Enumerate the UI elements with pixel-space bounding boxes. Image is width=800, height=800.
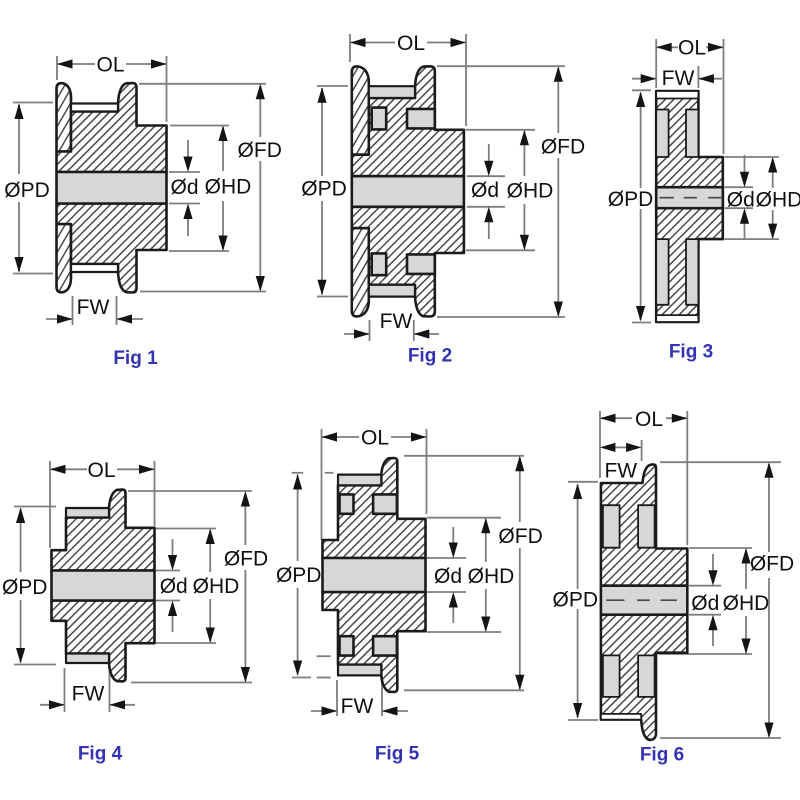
svg-text:FW: FW bbox=[604, 460, 637, 483]
svg-text:OL: OL bbox=[361, 427, 389, 450]
svg-text:FW: FW bbox=[341, 695, 374, 718]
svg-text:ØHD: ØHD bbox=[507, 180, 554, 203]
svg-text:ØFD: ØFD bbox=[238, 139, 282, 162]
svg-text:Fig 1: Fig 1 bbox=[113, 348, 158, 369]
svg-text:OL: OL bbox=[635, 408, 663, 431]
svg-text:Ød: Ød bbox=[691, 592, 719, 615]
svg-text:OL: OL bbox=[397, 32, 425, 55]
svg-text:FW: FW bbox=[72, 683, 105, 706]
svg-text:ØFD: ØFD bbox=[541, 136, 585, 159]
svg-text:ØHD: ØHD bbox=[468, 565, 515, 588]
svg-text:ØFD: ØFD bbox=[498, 525, 542, 548]
svg-text:FW: FW bbox=[662, 67, 695, 90]
svg-text:ØHD: ØHD bbox=[723, 592, 770, 615]
svg-text:ØHD: ØHD bbox=[193, 575, 240, 598]
svg-text:OL: OL bbox=[678, 37, 706, 60]
svg-text:Fig 6: Fig 6 bbox=[640, 745, 684, 766]
svg-text:ØPD: ØPD bbox=[301, 178, 347, 201]
svg-text:Ød: Ød bbox=[160, 575, 188, 598]
svg-text:Ød: Ød bbox=[471, 179, 499, 202]
svg-text:ØHD: ØHD bbox=[205, 176, 252, 199]
svg-text:Ød: Ød bbox=[434, 565, 462, 588]
svg-text:ØFD: ØFD bbox=[224, 548, 268, 571]
svg-text:Fig 3: Fig 3 bbox=[669, 342, 713, 363]
svg-text:Fig 2: Fig 2 bbox=[408, 346, 452, 367]
svg-text:ØPD: ØPD bbox=[2, 576, 48, 599]
svg-text:ØPD: ØPD bbox=[276, 564, 322, 587]
svg-text:Ød: Ød bbox=[727, 189, 755, 212]
svg-text:OL: OL bbox=[96, 54, 124, 77]
svg-text:OL: OL bbox=[87, 459, 115, 482]
svg-text:ØFD: ØFD bbox=[750, 553, 794, 576]
svg-text:ØHD: ØHD bbox=[756, 189, 800, 212]
svg-text:Fig 5: Fig 5 bbox=[375, 744, 420, 765]
svg-text:FW: FW bbox=[380, 310, 413, 333]
svg-text:ØPD: ØPD bbox=[4, 179, 50, 202]
svg-text:ØPD: ØPD bbox=[553, 589, 599, 612]
svg-text:ØPD: ØPD bbox=[608, 188, 654, 211]
svg-text:Ød: Ød bbox=[170, 176, 198, 199]
svg-text:Fig 4: Fig 4 bbox=[78, 744, 123, 765]
svg-text:FW: FW bbox=[77, 296, 110, 319]
